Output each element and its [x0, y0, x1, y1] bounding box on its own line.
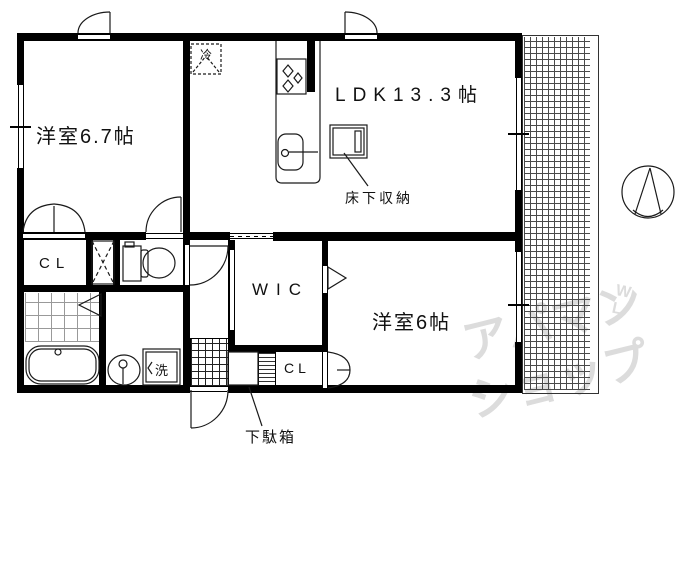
kitchen-counter-icon — [276, 41, 320, 183]
toilet-icon — [123, 242, 175, 281]
room-label-ldk: LDK13.3帖 — [335, 80, 484, 107]
entrance-door-icon — [191, 390, 228, 428]
label-washing-machine: 洗 — [155, 360, 168, 379]
label-shoe-cabinet: 下駄箱 — [245, 426, 296, 447]
wic-bifold-door-icon — [328, 267, 346, 289]
room-label-bedroom1: 洋室6.7帖 — [36, 120, 136, 149]
label-closet1: CL — [39, 255, 70, 272]
label-refrigerator: 冷 — [200, 46, 212, 63]
toilet-door-icon — [190, 246, 228, 285]
label-closet2: CL — [284, 360, 310, 376]
casement-window-icon-1 — [78, 12, 110, 33]
washbasin-icon — [108, 355, 140, 385]
room-label-bedroom2: 洋室6帖 — [372, 306, 451, 335]
closet2-double-door-icon — [328, 352, 350, 388]
shaft-x-icon — [92, 241, 114, 284]
floor-plan: アパマン ショップ W L ° — [0, 0, 690, 575]
shoe-cabinet-icon — [228, 352, 262, 426]
casement-window-icon-2 — [345, 12, 377, 33]
closet1-double-door-icon — [23, 204, 85, 232]
room-label-wic: WIC — [252, 280, 309, 300]
label-floor-storage: 床下収納 — [345, 188, 413, 208]
bath-folding-door-icon — [79, 294, 101, 316]
compass-icon — [622, 166, 674, 218]
bathtub-icon — [26, 346, 99, 384]
bed1-door-icon — [146, 197, 181, 232]
floor-storage-icon — [330, 125, 368, 186]
